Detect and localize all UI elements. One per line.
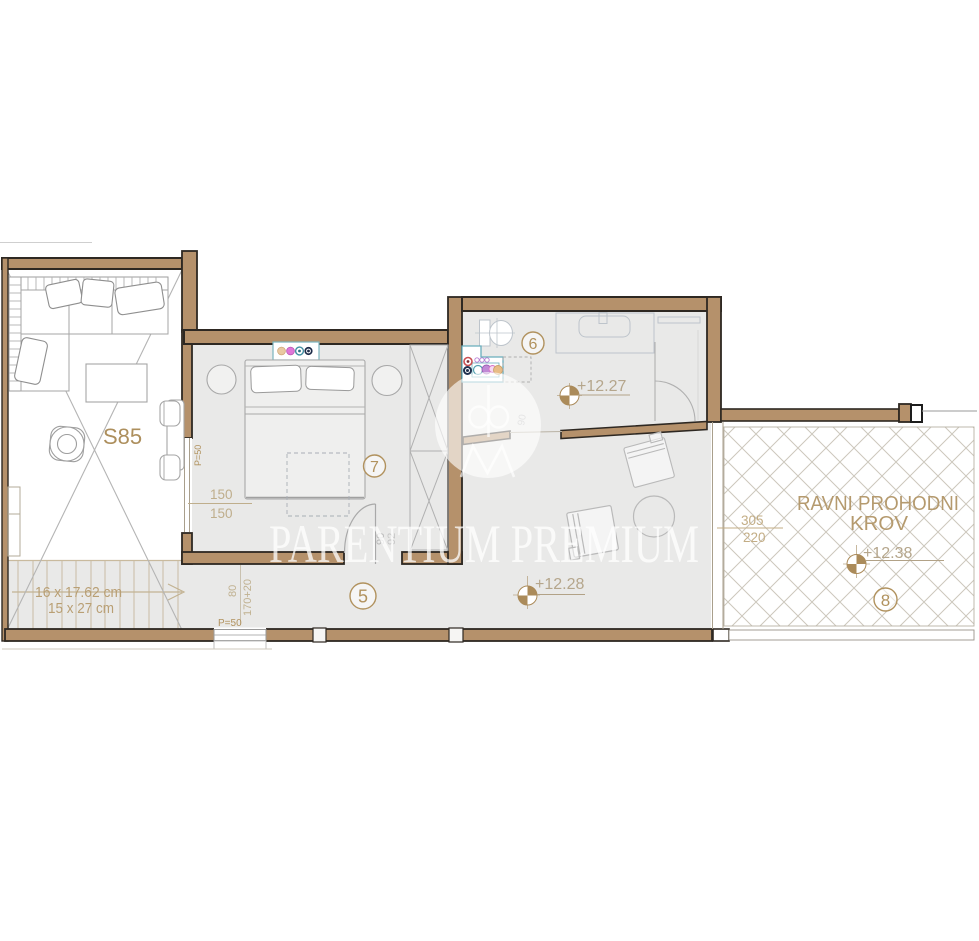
svg-text:+12.27: +12.27	[577, 378, 626, 395]
svg-text:PARENTIUM PREMIUM: PARENTIUM PREMIUM	[269, 514, 699, 574]
svg-text:15 x 27 cm: 15 x 27 cm	[48, 600, 114, 617]
svg-text:7: 7	[370, 459, 379, 476]
svg-text:305: 305	[741, 513, 764, 528]
svg-text:170+20: 170+20	[242, 579, 254, 616]
svg-text:80: 80	[227, 585, 239, 597]
svg-text:150: 150	[210, 506, 233, 521]
svg-text:+12.38: +12.38	[863, 545, 912, 562]
svg-text:+12.28: +12.28	[535, 576, 584, 593]
svg-text:6: 6	[529, 336, 538, 353]
svg-text:150: 150	[210, 487, 233, 502]
svg-text:220: 220	[743, 530, 766, 545]
svg-text:KROV: KROV	[850, 512, 908, 535]
svg-text:P=50: P=50	[218, 618, 242, 629]
svg-text:5: 5	[358, 587, 368, 607]
svg-text:S85: S85	[103, 424, 142, 449]
svg-text:8: 8	[881, 591, 890, 610]
svg-text:P=50: P=50	[193, 445, 203, 466]
svg-text:16 x 17.62 cm: 16 x 17.62 cm	[35, 584, 122, 601]
